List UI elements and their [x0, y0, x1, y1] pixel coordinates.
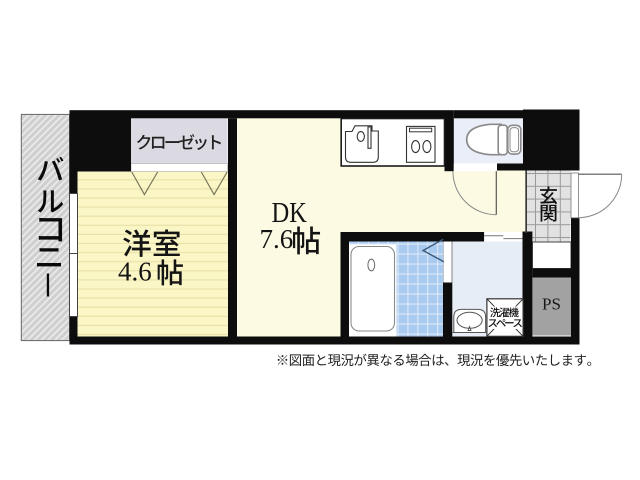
svg-text:PS: PS [542, 295, 561, 314]
svg-text:4.6: 4.6 [118, 257, 152, 287]
svg-text:7.6: 7.6 [260, 224, 294, 254]
